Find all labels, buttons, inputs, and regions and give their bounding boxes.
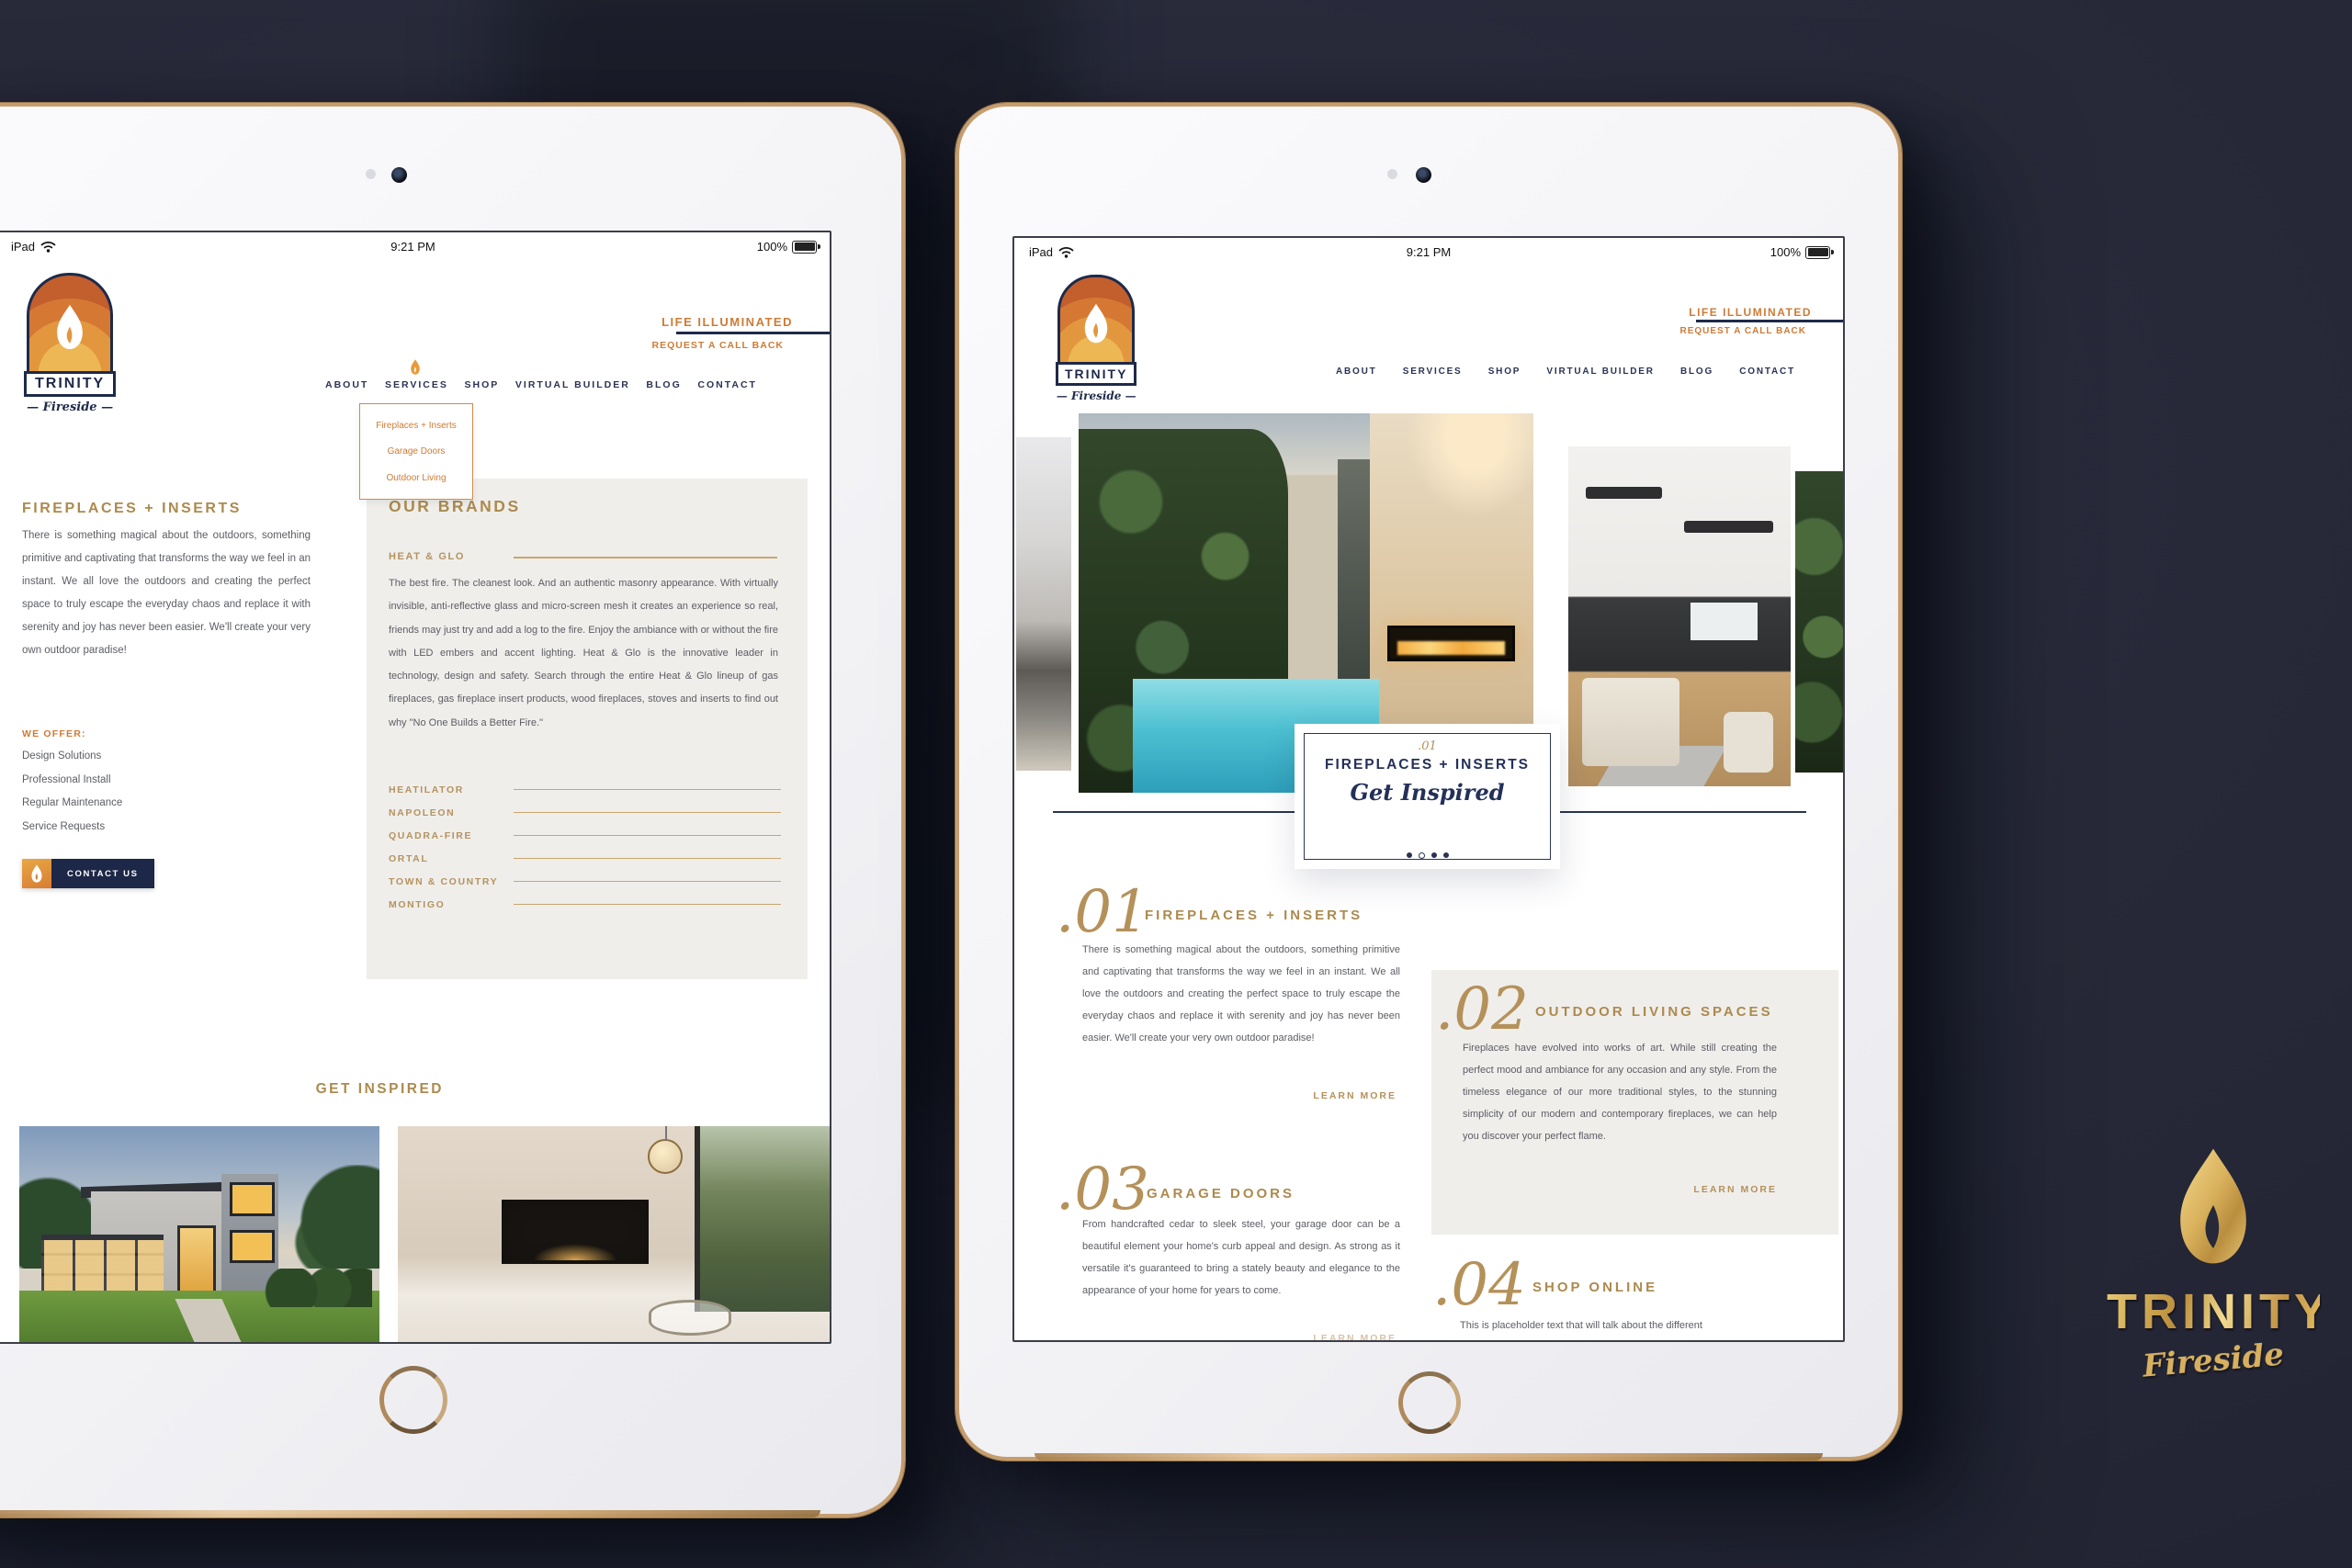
brand-label[interactable]: HEATILATOR bbox=[389, 784, 514, 795]
left-ipad-device: iPad 9:21 PM 100% bbox=[0, 103, 905, 1517]
section-number: .04 bbox=[1432, 1259, 1526, 1313]
main-nav: ABOUT SERVICES SHOP VIRTUAL BUILDER BLOG… bbox=[325, 379, 757, 390]
brand-rule bbox=[514, 858, 781, 860]
offer-label: WE OFFER: bbox=[22, 728, 86, 739]
brand-row[interactable]: NAPOLEON bbox=[389, 801, 808, 824]
nav-shop[interactable]: SHOP bbox=[465, 379, 500, 390]
brand-row[interactable]: HEATILATOR bbox=[389, 778, 808, 801]
hero-title: FIREPLACES + INSERTS bbox=[1295, 757, 1560, 773]
carousel-dots bbox=[1295, 852, 1560, 859]
brands-title: OUR BRANDS bbox=[389, 497, 521, 516]
carousel-photo-living-room[interactable] bbox=[1568, 446, 1791, 786]
featured-brand-text: The best fire. The cleanest look. And an… bbox=[389, 572, 778, 735]
button-flame-icon bbox=[22, 859, 51, 888]
featured-brand-label[interactable]: HEAT & GLO bbox=[389, 551, 465, 562]
section-text: There is something magical about the out… bbox=[1082, 939, 1400, 1049]
page-title: FIREPLACES + INSERTS bbox=[22, 501, 242, 517]
front-camera-icon bbox=[391, 167, 407, 183]
section-title-fireplaces: FIREPLACES + INSERTS bbox=[1145, 908, 1363, 923]
section-text: Fireplaces have evolved into works of ar… bbox=[1463, 1037, 1777, 1147]
page-intro: There is something magical about the out… bbox=[22, 525, 311, 662]
nav-shop[interactable]: SHOP bbox=[1488, 367, 1521, 377]
nav-about[interactable]: ABOUT bbox=[325, 379, 368, 390]
right-ipad-screen: iPad 9:21 PM 100% bbox=[1012, 236, 1845, 1342]
status-bar: iPad 9:21 PM 100% bbox=[0, 232, 830, 260]
dropdown-item-outdoor-living[interactable]: Outdoor Living bbox=[386, 473, 446, 483]
brands-panel: OUR BRANDS HEAT & GLO The best fire. The… bbox=[367, 479, 808, 979]
brand-rule bbox=[514, 881, 781, 883]
nav-contact[interactable]: CONTACT bbox=[697, 379, 757, 390]
left-ipad-screen: iPad 9:21 PM 100% bbox=[0, 231, 831, 1344]
offer-item: Professional Install bbox=[22, 769, 122, 793]
battery-percent: 100% bbox=[1770, 245, 1801, 259]
site-logo[interactable]: TRINITY — Fireside — bbox=[1056, 275, 1136, 402]
hero-card: .01 FIREPLACES + INSERTS Get Inspired bbox=[1295, 724, 1560, 869]
contact-us-button[interactable]: CONTACT US bbox=[22, 859, 154, 888]
brand-label[interactable]: TOWN & COUNTRY bbox=[389, 876, 514, 887]
carousel-dot-active[interactable] bbox=[1419, 852, 1425, 859]
brand-label[interactable]: QUADRA-FIRE bbox=[389, 830, 514, 841]
section-title-garage: GARAGE DOORS bbox=[1147, 1186, 1295, 1201]
active-flame-icon bbox=[410, 359, 421, 375]
section-panel-outdoor: .02 OUTDOOR LIVING SPACES Fireplaces hav… bbox=[1431, 970, 1838, 1235]
main-nav: ABOUT SERVICES SHOP VIRTUAL BUILDER BLOG… bbox=[1336, 367, 1795, 377]
section-text: This is placeholder text that will talk … bbox=[1460, 1314, 1777, 1337]
offer-item: Regular Maintenance bbox=[22, 792, 122, 816]
hero-number: .01 bbox=[1295, 739, 1560, 753]
nav-virtual-builder[interactable]: VIRTUAL BUILDER bbox=[1546, 367, 1654, 377]
inspiration-photo-house[interactable] bbox=[19, 1126, 379, 1342]
tagline-rule bbox=[1696, 320, 1843, 322]
request-callback-link[interactable]: REQUEST A CALL BACK bbox=[652, 340, 784, 351]
learn-more-link[interactable]: LEARN MORE bbox=[1463, 1184, 1777, 1195]
logo-arch-flame-icon bbox=[1057, 275, 1135, 365]
battery-percent: 100% bbox=[757, 240, 787, 254]
section-number: .01 bbox=[1056, 886, 1149, 940]
nav-about[interactable]: ABOUT bbox=[1336, 367, 1377, 377]
brand-rule bbox=[514, 812, 781, 814]
carousel-photo-partial-right[interactable] bbox=[1795, 471, 1843, 773]
foil-wordmark: TRINITY bbox=[2107, 1283, 2320, 1340]
section-title-shop: SHOP ONLINE bbox=[1532, 1280, 1657, 1295]
light-sensor-icon bbox=[366, 169, 376, 179]
brand-rule bbox=[514, 835, 781, 837]
brand-row[interactable]: TOWN & COUNTRY bbox=[389, 870, 808, 893]
inspiration-photo-fireplace[interactable] bbox=[398, 1126, 830, 1342]
inspired-title: GET INSPIRED bbox=[272, 1081, 444, 1098]
foil-flame-icon bbox=[2173, 1143, 2254, 1269]
learn-more-link[interactable]: LEARN MORE bbox=[1082, 1333, 1396, 1342]
right-ipad-device: iPad 9:21 PM 100% bbox=[955, 103, 1902, 1461]
contact-us-label: CONTACT US bbox=[51, 859, 154, 888]
section-number: .02 bbox=[1435, 984, 1529, 1037]
section-text: From handcrafted cedar to sleek steel, y… bbox=[1082, 1213, 1400, 1302]
nav-blog[interactable]: BLOG bbox=[646, 379, 681, 390]
brand-rule bbox=[514, 904, 781, 906]
hero-script: Get Inspired bbox=[1295, 779, 1560, 806]
foil-script: Fireside bbox=[2106, 1333, 2322, 1388]
carousel-dot[interactable] bbox=[1407, 852, 1412, 858]
offer-list: Design Solutions Professional Install Re… bbox=[22, 745, 122, 839]
site-logo[interactable]: TRINITY — Fireside — bbox=[24, 273, 116, 414]
brand-row[interactable]: ORTAL bbox=[389, 847, 808, 870]
mockup-scene: iPad 9:21 PM 100% bbox=[0, 0, 2352, 1568]
carousel-dot[interactable] bbox=[1431, 852, 1437, 858]
front-camera-icon bbox=[1416, 167, 1431, 183]
logo-wordmark: TRINITY bbox=[24, 371, 116, 397]
logo-script: — Fireside — bbox=[1057, 389, 1136, 402]
nav-contact[interactable]: CONTACT bbox=[1739, 367, 1795, 377]
nav-services[interactable]: SERVICES bbox=[385, 379, 448, 390]
dropdown-item-fireplaces[interactable]: Fireplaces + Inserts bbox=[376, 421, 457, 431]
home-button-icon bbox=[379, 1366, 447, 1434]
battery-icon bbox=[792, 241, 817, 254]
section-title-outdoor: OUTDOOR LIVING SPACES bbox=[1535, 1004, 1773, 1020]
brand-row[interactable]: QUADRA-FIRE bbox=[389, 824, 808, 847]
brand-rule bbox=[514, 789, 781, 791]
services-dropdown: Fireplaces + Inserts Garage Doors Outdoo… bbox=[359, 403, 473, 500]
nav-blog[interactable]: BLOG bbox=[1680, 367, 1713, 377]
nav-virtual-builder[interactable]: VIRTUAL BUILDER bbox=[515, 379, 630, 390]
logo-arch-flame-icon bbox=[27, 273, 113, 374]
logo-script: — Fireside — bbox=[27, 400, 113, 414]
status-bar: iPad 9:21 PM 100% bbox=[1014, 238, 1843, 265]
clock: 9:21 PM bbox=[0, 240, 830, 254]
brand-row[interactable]: MONTIGO bbox=[389, 893, 808, 916]
learn-more-link[interactable]: LEARN MORE bbox=[1082, 1090, 1396, 1101]
clock: 9:21 PM bbox=[1014, 245, 1843, 259]
featured-brand-rule bbox=[514, 557, 777, 558]
section-number: .03 bbox=[1056, 1164, 1149, 1217]
request-callback-link[interactable]: REQUEST A CALL BACK bbox=[1679, 326, 1806, 336]
brand-label[interactable]: NAPOLEON bbox=[389, 807, 514, 818]
brand-label[interactable]: ORTAL bbox=[389, 853, 514, 864]
tagline-rule bbox=[676, 332, 830, 334]
offer-item: Service Requests bbox=[22, 816, 122, 840]
home-button-icon bbox=[1398, 1371, 1461, 1434]
light-sensor-icon bbox=[1387, 169, 1397, 179]
carousel-dot[interactable] bbox=[1443, 852, 1449, 858]
foil-brand-logo: TRINITY Fireside bbox=[2107, 1143, 2320, 1379]
dropdown-item-garage-doors[interactable]: Garage Doors bbox=[388, 446, 446, 457]
tagline: LIFE ILLUMINATED bbox=[661, 315, 793, 329]
battery-icon bbox=[1805, 246, 1830, 259]
carousel-photo-partial-left[interactable] bbox=[1016, 437, 1071, 771]
tagline: LIFE ILLUMINATED bbox=[1689, 306, 1812, 319]
logo-wordmark: TRINITY bbox=[1056, 362, 1136, 386]
offer-item: Design Solutions bbox=[22, 745, 122, 769]
brand-list: HEATILATOR NAPOLEON QUADRA-FIRE ORTAL TO… bbox=[389, 778, 808, 916]
nav-services[interactable]: SERVICES bbox=[1403, 367, 1463, 377]
brand-label[interactable]: MONTIGO bbox=[389, 899, 514, 910]
